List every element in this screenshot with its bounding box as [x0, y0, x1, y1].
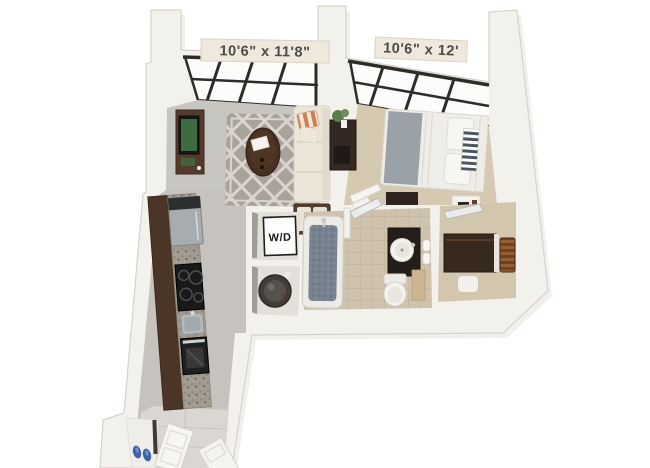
dresser [386, 192, 418, 205]
washer-dryer-unit: W/D [263, 216, 296, 255]
bathroom [302, 198, 432, 310]
bed [380, 109, 488, 192]
vanity [388, 228, 420, 276]
floor-plan-svg: W/D [0, 0, 650, 468]
dimension-label-bedroom: 10'6" x 12' [375, 37, 468, 62]
laundry-bin [458, 276, 478, 292]
floor-plan-page: W/D [0, 0, 650, 468]
washer-dryer-label: W/D [268, 232, 291, 245]
dimension-label-living: 10'6" x 11'8" [201, 39, 329, 63]
cooktop [175, 263, 205, 311]
coffee-table [246, 128, 280, 176]
bed-blanket [384, 111, 423, 185]
throw-pillow [299, 127, 319, 143]
oven [180, 337, 209, 375]
living-room-windows [183, 56, 318, 108]
sink-faucet [411, 243, 415, 247]
utility-closet [252, 266, 300, 316]
bathtub [302, 216, 344, 309]
entry-closet [126, 418, 158, 468]
vase [341, 120, 347, 128]
toilet [384, 274, 406, 306]
washer-dryer-closet: W/D [252, 212, 300, 260]
closet-basket [500, 238, 515, 272]
walk-in-closet [438, 202, 516, 302]
svg-text:10'6" x 12': 10'6" x 12' [383, 40, 459, 59]
books [181, 158, 195, 166]
tv-console [176, 110, 204, 174]
sofa [294, 106, 330, 202]
storage-cabinet [412, 270, 425, 300]
tv-screen [181, 119, 197, 151]
refrigerator [168, 196, 204, 246]
svg-text:10'6" x 11'8": 10'6" x 11'8" [219, 43, 310, 61]
